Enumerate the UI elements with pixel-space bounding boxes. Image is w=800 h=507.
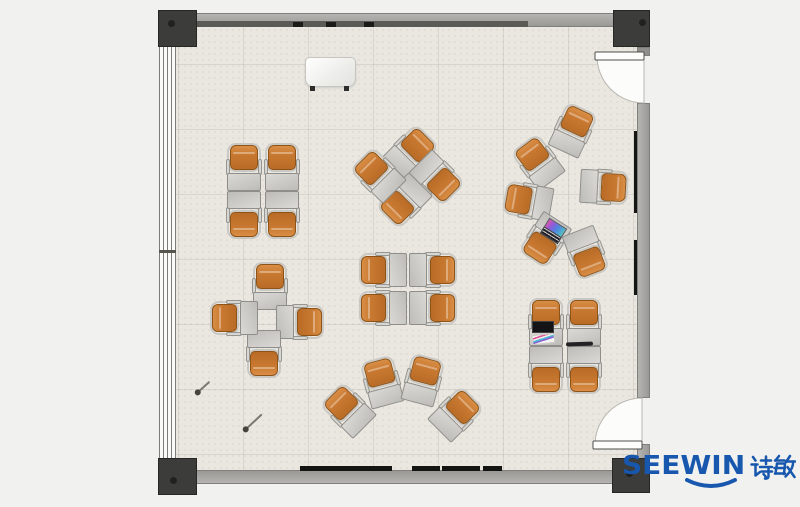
desk-chair-unit <box>359 253 407 287</box>
desk-chair-unit <box>227 191 261 239</box>
desk-top <box>227 191 261 209</box>
desk-chair-unit <box>253 262 287 310</box>
chair-arm <box>560 362 564 378</box>
desk-chair-unit <box>265 143 299 191</box>
desk-chair-unit <box>567 298 601 346</box>
desk-chair-unit <box>359 291 407 325</box>
chair-arm <box>264 207 268 223</box>
desk-top <box>567 346 601 364</box>
color-papers <box>532 333 556 345</box>
chair-seat <box>570 367 598 392</box>
chair-arm <box>528 362 532 378</box>
desk-top <box>409 291 427 325</box>
desk-chair-unit <box>409 291 457 325</box>
desk-chair-unit <box>359 354 404 409</box>
brand-smile-icon <box>684 478 738 492</box>
chair-arm <box>595 201 611 206</box>
desk-chair-unit <box>529 346 563 394</box>
chair-seat <box>600 173 626 202</box>
mobile-whiteboard <box>305 57 356 87</box>
chair-arm <box>296 207 300 223</box>
stick <box>196 381 210 394</box>
chair-arm <box>597 169 613 174</box>
desk-chair-unit <box>547 101 598 159</box>
desk-top <box>240 301 258 335</box>
chair-seat <box>297 308 322 336</box>
desk-chair-unit <box>409 253 457 287</box>
chair-arm <box>278 346 282 362</box>
chair-seat <box>430 294 455 322</box>
desk-chair-unit <box>227 143 261 191</box>
chair-seat <box>361 294 386 322</box>
chair-arm <box>425 290 441 294</box>
chair-seat <box>570 300 598 325</box>
desk-chair-unit <box>276 305 324 339</box>
desk-top <box>389 291 407 325</box>
chair-seat <box>230 212 258 237</box>
chair-seat <box>256 264 284 289</box>
desk-chair-unit <box>562 225 611 282</box>
chinese-glyphs <box>750 454 796 481</box>
desk-top <box>389 253 407 287</box>
brand-logo: SEEWIN <box>622 452 798 494</box>
chair-seat <box>532 367 560 392</box>
desk-chair-unit <box>210 301 258 335</box>
chair-seat <box>250 351 278 376</box>
chair-seat <box>504 183 533 215</box>
chair-seat <box>361 256 386 284</box>
chair-arm <box>425 284 441 288</box>
desk-top <box>409 253 427 287</box>
chair-arm <box>292 336 308 340</box>
chair-seat <box>212 304 237 332</box>
chair-arm <box>566 362 570 378</box>
desk-top <box>529 346 563 364</box>
laptop-black <box>532 321 554 344</box>
desk-chair-unit <box>400 352 445 407</box>
stick <box>244 414 262 431</box>
desk-top <box>265 173 299 191</box>
desk-top <box>227 173 261 191</box>
chair-seat <box>230 145 258 170</box>
chair-arm <box>425 252 441 256</box>
desk-chair-unit <box>567 346 601 394</box>
podium <box>305 57 356 87</box>
chair-arm <box>258 207 262 223</box>
desk-chair-unit <box>247 330 281 378</box>
brand-chinese-characters <box>750 454 796 485</box>
brand-wordmark: SEEWIN <box>622 454 745 478</box>
furniture-layer <box>0 0 800 507</box>
chair-arm <box>292 304 308 308</box>
chair-arm <box>246 346 250 362</box>
chair-arm <box>598 362 602 378</box>
chair-arm <box>425 322 441 326</box>
desk-top <box>579 169 599 204</box>
caster <box>310 86 315 91</box>
chair-seat <box>268 145 296 170</box>
laptop-screen <box>532 321 554 333</box>
chair-arm <box>226 207 230 223</box>
desk-chair-unit <box>265 191 299 239</box>
chair-seat <box>430 256 455 284</box>
desk-top <box>265 191 299 209</box>
caster <box>344 86 349 91</box>
classroom-floor-plan: SEEWIN <box>0 0 800 507</box>
desk-chair-unit <box>579 169 629 205</box>
chair-seat <box>268 212 296 237</box>
